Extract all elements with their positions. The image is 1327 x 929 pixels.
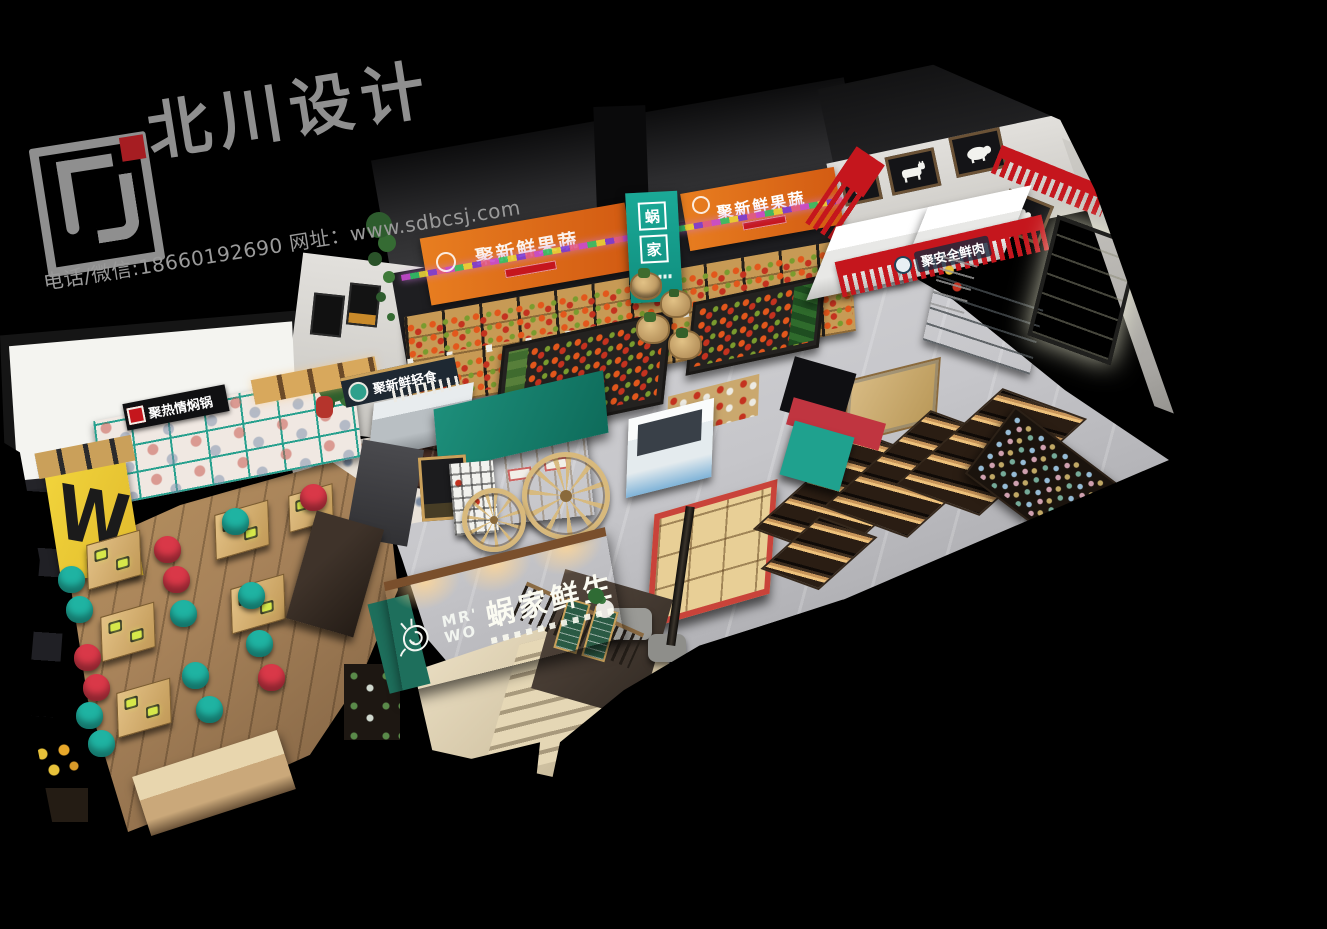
dining-chair [170,600,197,627]
render-canvas: 聚新鲜轻食 聚新鲜果蔬 聚新鲜果蔬 蜗 家 [0,0,1327,929]
deli-poster [346,282,381,327]
pineapple-top [638,268,650,278]
entry-column-char-bottom: 家 [639,234,668,263]
dining-chair [258,664,285,691]
dining-chair [76,702,103,729]
pig-board-icon [960,140,995,165]
snail-logo-icon [391,611,439,663]
dining-chair [66,596,93,623]
dining-chair [74,644,101,671]
dining-chair [163,566,190,593]
entry-column-char-top: 蜗 [638,201,667,230]
dining-chair [154,536,181,563]
cart-wheel-large [522,452,610,540]
pineapple-barrel [668,330,702,360]
deli-poster [310,292,345,337]
dining-chair [246,630,273,657]
dining-chair [300,484,327,511]
red-barrel-table [316,396,333,418]
logo-accent-square [119,134,146,161]
lounge-plant [588,588,604,604]
dining-chair [88,730,115,757]
dining-chair [222,508,249,535]
freezer-opening [637,409,702,456]
dining-chair [182,662,209,689]
cow-board-icon [895,159,930,183]
pineapple-barrel [636,314,670,344]
cart-wheel-small [462,488,526,552]
meat-banner-badge-icon [893,254,915,276]
logo-mark [89,173,142,244]
dining-chair [238,582,265,609]
hotpot-logo-icon [126,405,146,425]
storefront-latin: MR' WO [440,605,482,646]
dining-chair [58,566,85,593]
pineapple-barrel [660,290,692,318]
deli-logo-icon [346,380,370,404]
dining-chair [196,696,223,723]
dining-chair [83,674,110,701]
watermark-brand: 北川设计 [140,38,439,174]
